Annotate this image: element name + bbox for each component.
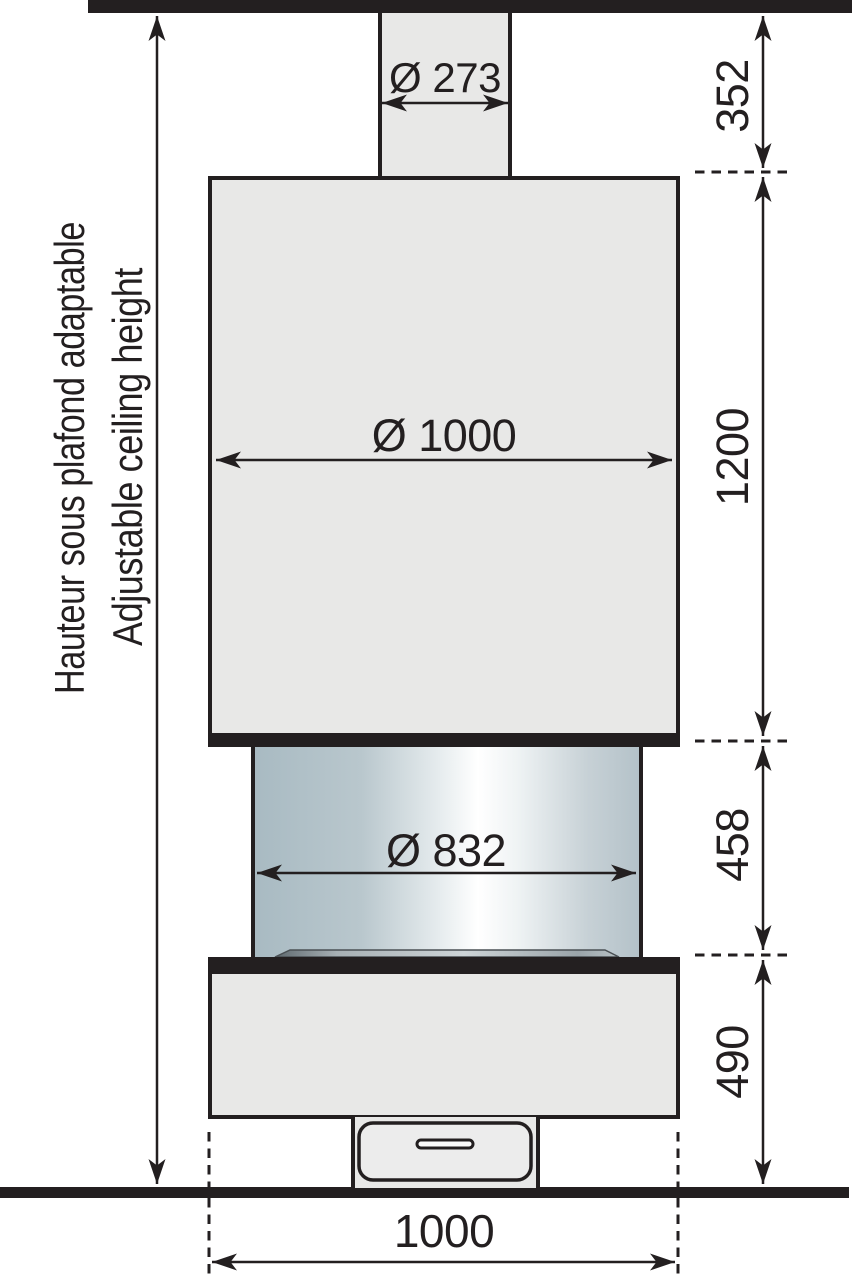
adjustable-height-label-fr: Hauteur sous plafond adaptable: [46, 222, 93, 694]
ceiling-bar: [88, 0, 852, 13]
base-height-value: 490: [707, 1025, 758, 1099]
firebox-diameter-value: Ø 832: [386, 825, 506, 876]
hood-bottom-band: [208, 733, 680, 747]
fireplace-dimension-drawing: Hauteur sous plafond adaptable Adjustabl…: [0, 0, 852, 1279]
base-width-value: 1000: [394, 1205, 494, 1257]
floor-bar: [0, 1187, 849, 1198]
adjustable-height-label-en: Adjustable ceiling height: [104, 267, 151, 646]
firebox-height-value: 458: [707, 808, 758, 882]
drawing-canvas: Hauteur sous plafond adaptable Adjustabl…: [0, 0, 852, 1279]
flue-height-value: 352: [707, 59, 758, 133]
flue-diameter-value: Ø 273: [389, 54, 501, 101]
fire-plate: [275, 950, 619, 957]
hood-diameter-value: Ø 1000: [372, 410, 517, 461]
base-body: [210, 972, 678, 1117]
hood-height-value: 1200: [707, 408, 758, 506]
base-top-band: [208, 957, 680, 972]
drawer-handle: [417, 1140, 473, 1148]
drawer-front: [359, 1123, 531, 1180]
